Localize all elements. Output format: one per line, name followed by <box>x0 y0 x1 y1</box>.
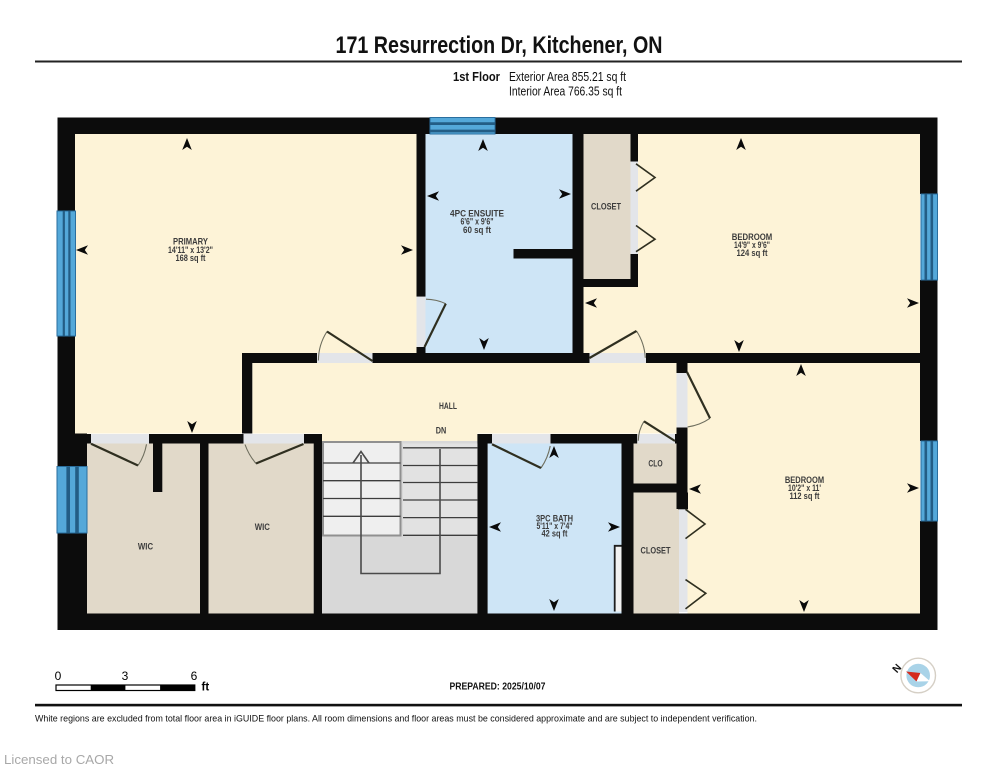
svg-text:DN: DN <box>436 426 447 436</box>
svg-text:CLOSET: CLOSET <box>641 546 672 556</box>
svg-text:Licensed to CAOR: Licensed to CAOR <box>4 752 114 767</box>
svg-text:6: 6 <box>191 669 198 683</box>
svg-text:CLO: CLO <box>648 459 662 469</box>
svg-text:Exterior Area 855.21 sq ft: Exterior Area 855.21 sq ft <box>509 70 626 84</box>
svg-text:112 sq ft: 112 sq ft <box>790 491 820 501</box>
svg-text:168 sq ft: 168 sq ft <box>176 253 206 263</box>
svg-text:Interior Area 766.35 sq ft: Interior Area 766.35 sq ft <box>509 85 622 99</box>
svg-text:CLOSET: CLOSET <box>591 202 622 212</box>
svg-text:3: 3 <box>122 669 129 683</box>
svg-text:171 Resurrection Dr, Kitchener: 171 Resurrection Dr, Kitchener, ON <box>336 32 663 59</box>
svg-text:ft: ft <box>202 681 210 693</box>
svg-text:WIC: WIC <box>255 522 271 532</box>
svg-text:124 sq ft: 124 sq ft <box>737 248 768 258</box>
svg-text:WIC: WIC <box>138 542 154 552</box>
svg-text:HALL: HALL <box>439 401 457 411</box>
svg-text:42 sq ft: 42 sq ft <box>542 529 568 539</box>
svg-text:White regions are excluded fro: White regions are excluded from total fl… <box>35 713 757 723</box>
svg-text:0: 0 <box>55 669 62 683</box>
svg-text:1st Floor: 1st Floor <box>453 70 500 84</box>
svg-text:60 sq ft: 60 sq ft <box>463 225 491 235</box>
svg-text:PREPARED: 2025/10/07: PREPARED: 2025/10/07 <box>450 682 546 693</box>
